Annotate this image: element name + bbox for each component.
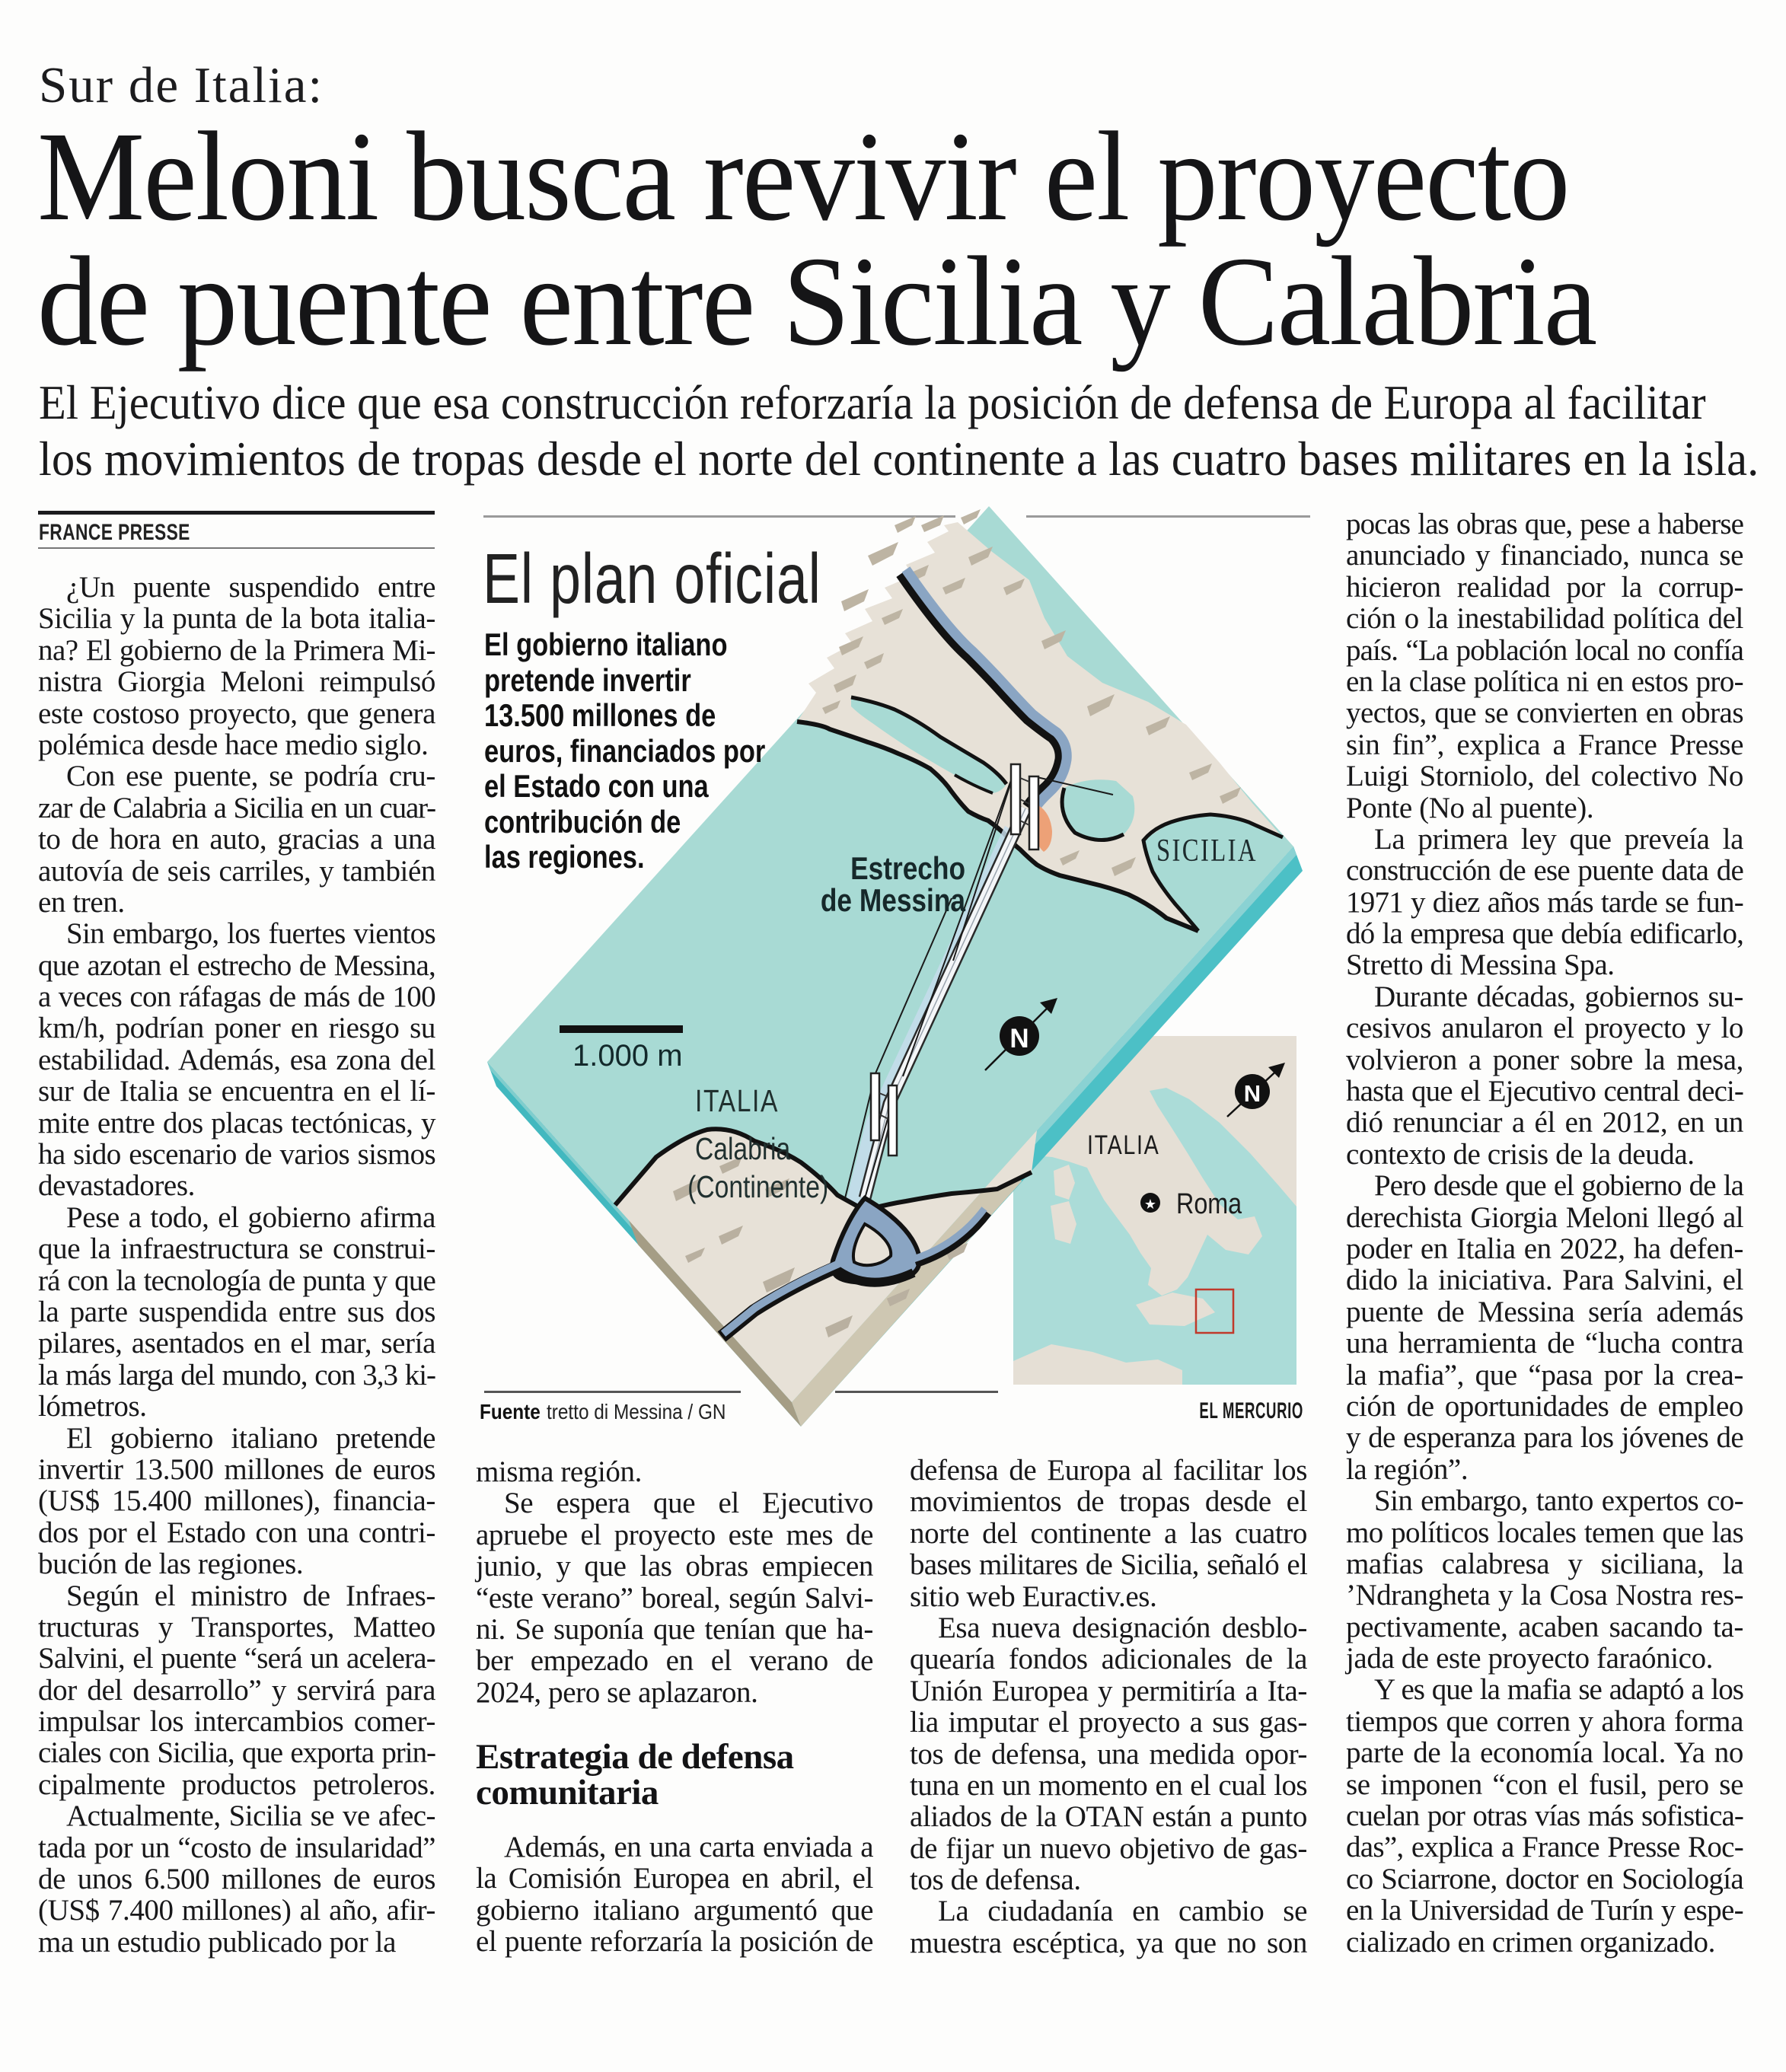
svg-text:tretto di Messina / GN: tretto di Messina / GN: [547, 1399, 726, 1423]
svg-text:N: N: [1009, 1024, 1029, 1054]
svg-text:★: ★: [1144, 1197, 1156, 1212]
svg-text:El plan oficial: El plan oficial: [483, 539, 821, 618]
svg-text:Fuente: Fuente: [480, 1399, 541, 1423]
svg-text:las regiones.: las regiones.: [484, 840, 645, 875]
svg-text:contribución de: contribución de: [484, 805, 681, 840]
svg-text:El gobierno italiano: El gobierno italiano: [484, 627, 728, 663]
svg-text:N: N: [1244, 1080, 1261, 1107]
svg-text:euros, financiados por: euros, financiados por: [484, 734, 765, 770]
svg-text:(Continente): (Continente): [687, 1169, 828, 1204]
svg-text:ITALIA: ITALIA: [1087, 1130, 1159, 1159]
svg-text:de Messina: de Messina: [821, 883, 966, 919]
svg-text:EL MERCURIO: EL MERCURIO: [1199, 1398, 1303, 1424]
svg-text:Estrecho: Estrecho: [850, 851, 965, 887]
svg-text:ITALIA: ITALIA: [695, 1083, 779, 1118]
svg-text:Roma: Roma: [1176, 1188, 1242, 1220]
svg-text:el Estado con una: el Estado con una: [484, 769, 709, 805]
svg-text:pretende invertir: pretende invertir: [484, 663, 691, 699]
svg-text:SICILIA: SICILIA: [1156, 833, 1258, 869]
svg-text:13.500 millones de: 13.500 millones de: [484, 698, 716, 734]
svg-text:Calabria: Calabria: [695, 1131, 790, 1166]
svg-text:1.000 m: 1.000 m: [572, 1039, 683, 1073]
